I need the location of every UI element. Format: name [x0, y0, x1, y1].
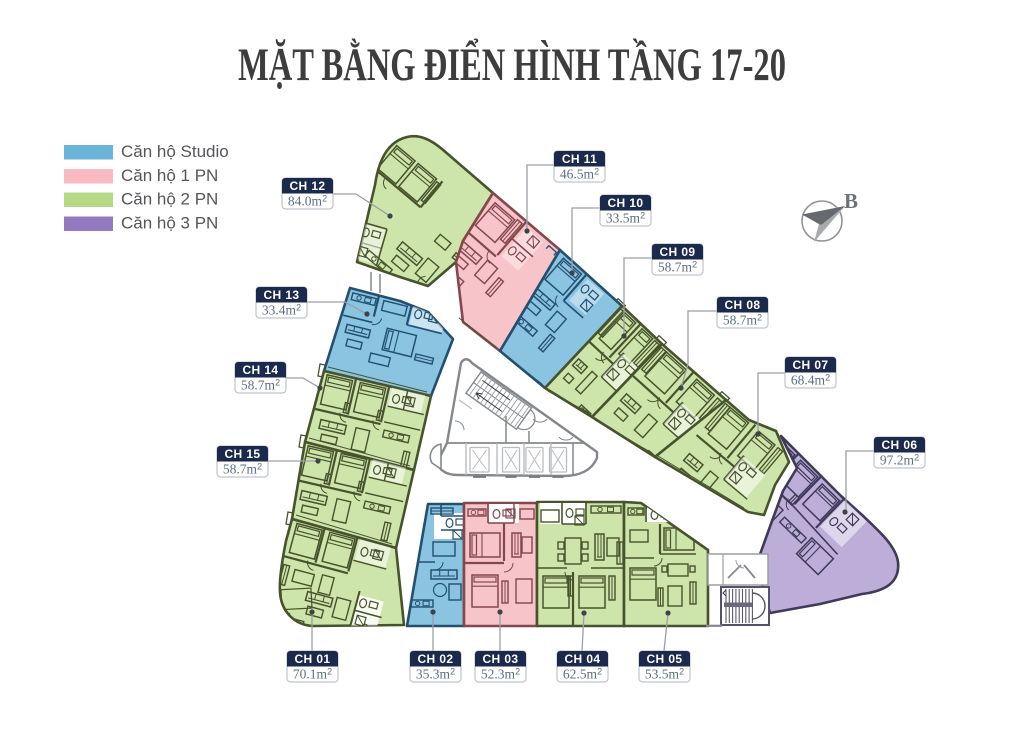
svg-text:CH 13: CH 13 [263, 288, 299, 302]
svg-text:70.1m2: 70.1m2 [293, 667, 332, 682]
svg-text:52.3m2: 52.3m2 [481, 667, 520, 682]
svg-text:CH 15: CH 15 [224, 447, 260, 461]
svg-text:46.5m2: 46.5m2 [560, 167, 599, 182]
svg-text:CH 03: CH 03 [482, 652, 518, 666]
svg-text:CH 08: CH 08 [724, 298, 760, 312]
svg-text:CH 02: CH 02 [417, 652, 453, 666]
svg-text:CH 14: CH 14 [242, 363, 278, 377]
svg-text:35.3m2: 35.3m2 [416, 667, 455, 682]
svg-text:CH 07: CH 07 [792, 358, 828, 372]
svg-text:CH 12: CH 12 [289, 179, 325, 193]
svg-text:Căn hộ 1 PN: Căn hộ 1 PN [121, 166, 218, 185]
svg-text:Căn hộ 3 PN: Căn hộ 3 PN [121, 214, 218, 233]
svg-text:CH 10: CH 10 [607, 196, 643, 210]
svg-text:68.4m2: 68.4m2 [791, 373, 830, 388]
svg-text:58.7m2: 58.7m2 [658, 260, 697, 275]
svg-text:CH 04: CH 04 [564, 652, 600, 666]
svg-text:58.7m2: 58.7m2 [223, 462, 262, 477]
svg-text:MẶT BẰNG ĐIỂN HÌNH TẦNG 17-20: MẶT BẰNG ĐIỂN HÌNH TẦNG 17-20 [238, 38, 786, 91]
svg-text:CH 01: CH 01 [294, 652, 330, 666]
svg-text:CH 11: CH 11 [562, 152, 597, 166]
svg-text:58.7m2: 58.7m2 [723, 313, 762, 328]
svg-text:62.5m2: 62.5m2 [563, 667, 602, 682]
svg-text:Căn hộ 2 PN: Căn hộ 2 PN [121, 190, 218, 209]
svg-text:97.2m2: 97.2m2 [880, 453, 919, 468]
svg-text:33.5m2: 33.5m2 [606, 211, 645, 226]
svg-text:B: B [844, 189, 858, 213]
svg-text:CH 09: CH 09 [659, 245, 695, 259]
svg-text:53.5m2: 53.5m2 [645, 667, 684, 682]
svg-text:84.0m2: 84.0m2 [288, 194, 327, 209]
svg-text:CH 06: CH 06 [881, 438, 917, 452]
svg-text:CH 05: CH 05 [646, 652, 682, 666]
svg-text:33.4m2: 33.4m2 [262, 303, 301, 318]
svg-text:Căn hộ Studio: Căn hộ Studio [121, 142, 229, 161]
svg-text:58.7m2: 58.7m2 [241, 378, 280, 393]
